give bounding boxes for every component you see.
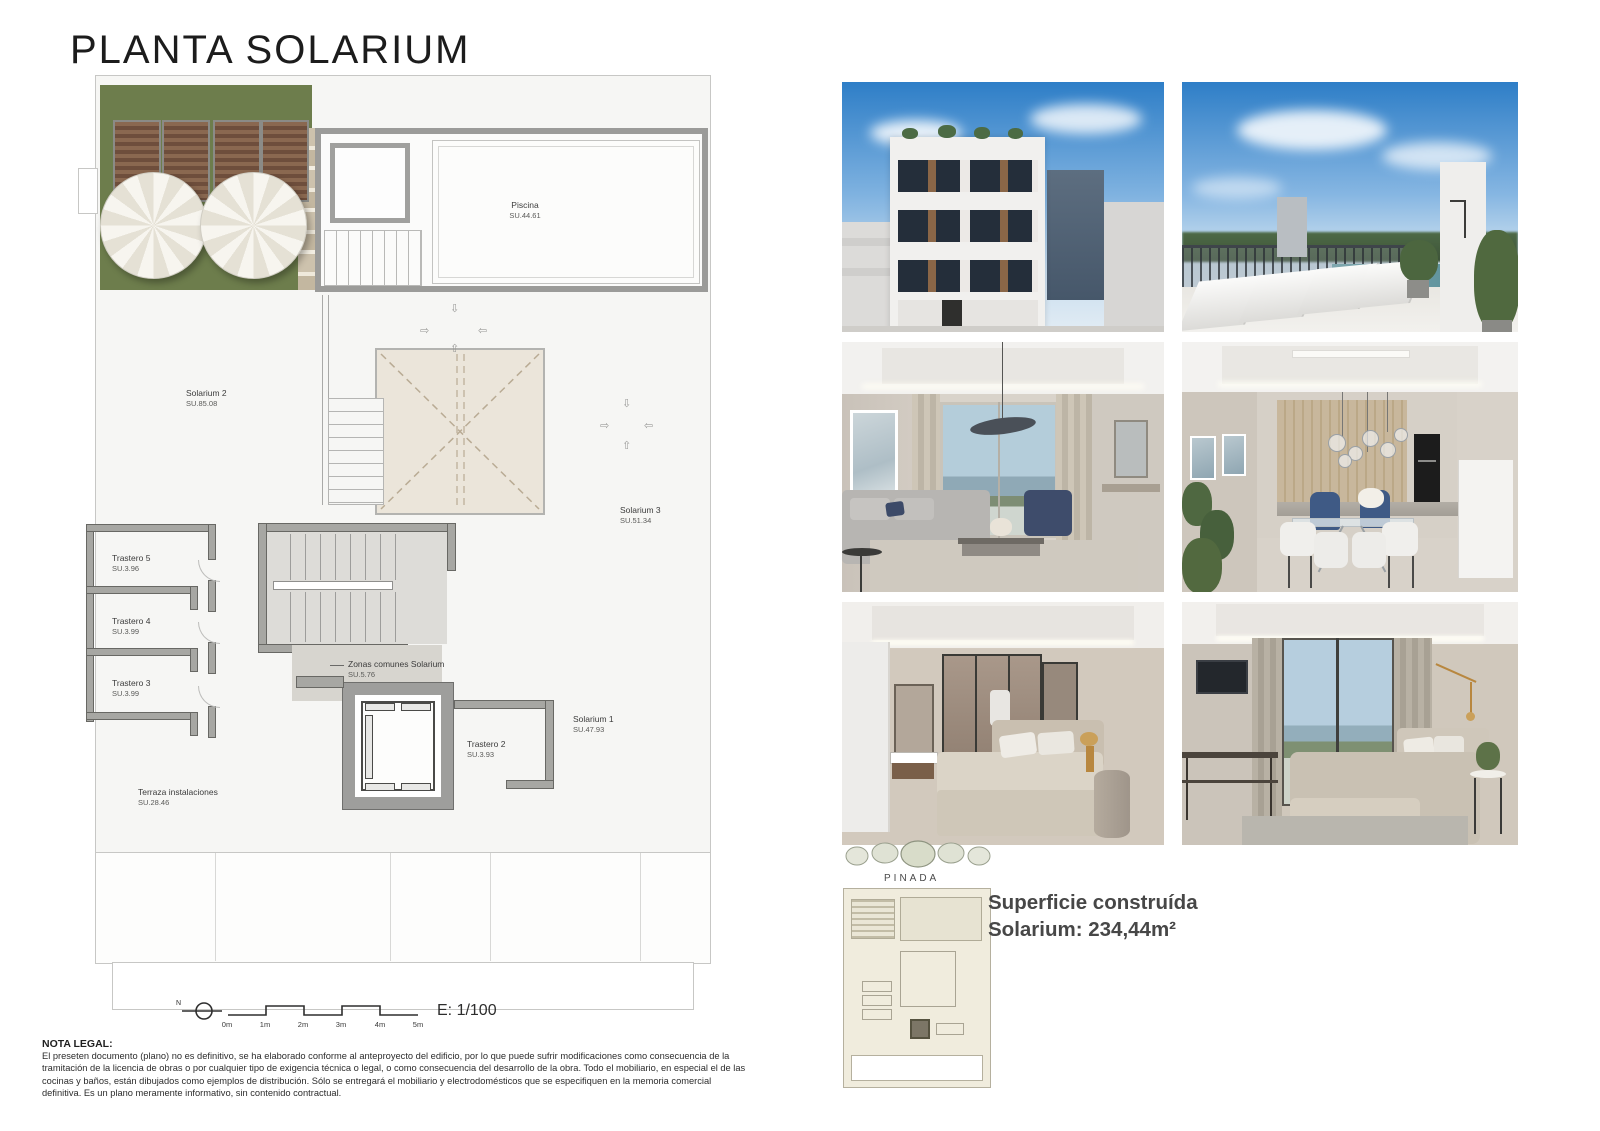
neighbor-building-right bbox=[1104, 202, 1164, 332]
bathroom-mirror bbox=[894, 684, 934, 756]
site-plan-label: PINADA bbox=[884, 873, 939, 884]
side-table-leg bbox=[1474, 778, 1476, 834]
elevator-door-rail bbox=[365, 783, 395, 791]
room-area: SU.28.46 bbox=[138, 798, 218, 807]
slope-arrow-right-icon: ⇨ bbox=[420, 325, 429, 336]
pinada-trees-icon bbox=[843, 840, 993, 870]
roof-plant bbox=[938, 125, 956, 138]
room-name: Trastero 4 bbox=[112, 616, 150, 626]
scale-tick-label: 5m bbox=[406, 1020, 430, 1029]
window-band bbox=[898, 160, 1038, 192]
wall-tv bbox=[1196, 660, 1248, 694]
room-label-solarium-2: Solarium 2 SU.85.08 bbox=[186, 388, 227, 408]
room-name: Zonas comunes Solarium bbox=[348, 659, 444, 669]
wall bbox=[258, 523, 456, 532]
wall bbox=[190, 586, 198, 610]
chair-leg bbox=[1388, 556, 1390, 588]
plant bbox=[1474, 230, 1518, 332]
chandelier-bubble bbox=[1362, 430, 1379, 447]
cove-light bbox=[872, 640, 1134, 645]
scale-tick-label: 0m bbox=[215, 1020, 239, 1029]
wall bbox=[86, 524, 216, 532]
sofa-cushion bbox=[850, 498, 890, 520]
render-photo-living-room bbox=[842, 342, 1164, 592]
legal-note: NOTA LEGAL: El preseten documento (plano… bbox=[42, 1038, 748, 1100]
slope-arrow-left-icon: ⇦ bbox=[478, 325, 487, 336]
room-area: SU.47.93 bbox=[573, 725, 614, 734]
street bbox=[842, 326, 1164, 332]
pool-stairs bbox=[324, 230, 422, 286]
room-area: SU.44.61 bbox=[470, 211, 580, 220]
wall bbox=[296, 676, 344, 688]
roof-plant bbox=[1008, 128, 1023, 139]
flower-bouquet bbox=[990, 518, 1012, 536]
side-table-leg bbox=[860, 554, 862, 592]
chandelier-bubble bbox=[1328, 434, 1346, 452]
built-in-oven bbox=[1414, 434, 1440, 504]
cove-light bbox=[1218, 382, 1482, 387]
wall bbox=[208, 524, 216, 560]
flower-bouquet bbox=[1358, 488, 1384, 508]
wall bbox=[86, 648, 198, 656]
chandelier-bubble bbox=[1338, 454, 1352, 468]
room-name: Trastero 5 bbox=[112, 553, 150, 563]
cove-light bbox=[862, 384, 1144, 389]
north-label: N bbox=[176, 1000, 181, 1007]
legal-heading: NOTA LEGAL: bbox=[42, 1038, 748, 1050]
wall bbox=[190, 712, 198, 736]
room-label-trastero-5: Trastero 5 SU.3.96 bbox=[112, 553, 150, 573]
wall-art bbox=[850, 410, 898, 502]
umbrella-icon bbox=[100, 172, 207, 279]
scale-tick-label: 4m bbox=[368, 1020, 392, 1029]
scale-tick-label: 1m bbox=[253, 1020, 277, 1029]
mini-plan-skylight bbox=[900, 951, 956, 1007]
ceiling-recess bbox=[1216, 604, 1484, 636]
render-photo-rooftop-terrace bbox=[1182, 82, 1518, 332]
room-label-solarium-1: Solarium 1 SU.47.93 bbox=[573, 714, 614, 734]
chandelier-cord bbox=[1342, 392, 1343, 437]
gold-lamp-base bbox=[1086, 746, 1094, 772]
scale-tick-label: 2m bbox=[291, 1020, 315, 1029]
stair-flight-upper bbox=[276, 534, 396, 580]
side-table-leg bbox=[1500, 778, 1502, 834]
wall bbox=[447, 523, 456, 571]
roof-plant bbox=[974, 127, 990, 139]
white-chair bbox=[1314, 532, 1348, 568]
stair-flight-lower bbox=[276, 592, 396, 642]
gold-wall-lamp-stem bbox=[1470, 682, 1472, 714]
room-name: Solarium 3 bbox=[620, 505, 661, 515]
slope-arrow-right-icon: ⇨ bbox=[600, 420, 609, 431]
rug bbox=[1242, 816, 1468, 845]
mini-plan-pool bbox=[900, 897, 982, 941]
ceiling-light-panel bbox=[1292, 350, 1410, 358]
pillow bbox=[1037, 731, 1074, 755]
mini-plan-room bbox=[936, 1023, 964, 1035]
slope-arrow-up-icon: ⇧ bbox=[450, 343, 459, 354]
chair-leg bbox=[1412, 556, 1414, 588]
skylight-dashed-lines bbox=[377, 350, 543, 513]
room-name: Terraza instalaciones bbox=[138, 787, 218, 797]
room-area: SU.3.99 bbox=[112, 627, 150, 636]
room-area: SU.5.76 bbox=[348, 670, 444, 679]
dark-building-slab bbox=[1047, 170, 1104, 300]
room-name: Solarium 2 bbox=[186, 388, 227, 398]
plan-division-line bbox=[390, 853, 391, 961]
plan-division-line bbox=[215, 853, 216, 961]
slope-arrow-down-icon: ⇩ bbox=[622, 398, 631, 409]
slope-arrow-left-icon: ⇦ bbox=[644, 420, 653, 431]
navy-armchair bbox=[1024, 490, 1072, 536]
room-area: SU.3.93 bbox=[467, 750, 505, 759]
cloud bbox=[1030, 104, 1142, 134]
plan-boundary-lower bbox=[95, 852, 711, 964]
stair-handrail bbox=[273, 581, 393, 590]
room-area: SU.3.99 bbox=[112, 689, 150, 698]
room-name: Trastero 2 bbox=[467, 739, 505, 749]
curtain bbox=[1252, 638, 1282, 818]
white-chair bbox=[1382, 522, 1418, 556]
window-band bbox=[898, 260, 1038, 292]
room-label-trastero-2: Trastero 2 SU.3.93 bbox=[467, 739, 505, 759]
slope-arrow-down-icon: ⇩ bbox=[450, 303, 459, 314]
legal-body: El preseten documento (plano) no es defi… bbox=[42, 1050, 748, 1100]
white-chair bbox=[1352, 532, 1386, 568]
gold-lamp-shade bbox=[1080, 732, 1098, 746]
white-cabinet bbox=[1458, 460, 1513, 578]
room-name: Piscina bbox=[511, 200, 538, 210]
plan-notch bbox=[78, 168, 98, 214]
room-label-solarium-3: Solarium 3 SU.51.34 bbox=[620, 505, 661, 525]
desk-leg bbox=[1186, 758, 1188, 820]
site-mini-plan bbox=[843, 888, 991, 1088]
wall bbox=[208, 642, 216, 674]
elevator-door-rail bbox=[365, 703, 395, 711]
room-label-zonas-comunes: Zonas comunes Solarium SU.5.76 bbox=[348, 659, 444, 679]
room-label-trastero-4: Trastero 4 SU.3.99 bbox=[112, 616, 150, 636]
navy-pillow bbox=[885, 501, 905, 517]
ceiling-recess bbox=[872, 606, 1134, 640]
built-area-summary: Superficie construída Solarium: 234,44m² bbox=[988, 890, 1198, 943]
scale-bar bbox=[227, 1002, 420, 1018]
ceiling-recess bbox=[882, 348, 1124, 384]
render-photo-bedroom-window bbox=[1182, 602, 1518, 845]
wall bbox=[86, 586, 198, 594]
mirror bbox=[1114, 420, 1148, 478]
scale-ratio: E: 1/100 bbox=[437, 1002, 497, 1020]
plant bbox=[1400, 240, 1438, 282]
render-photo-bedroom-dressing bbox=[842, 602, 1164, 845]
window-band bbox=[898, 210, 1038, 242]
room-name: Solarium 1 bbox=[573, 714, 614, 724]
floor-plan: Piscina SU.44.61 ⇩ ⇨ ⇦ ⇧ ⇩ ⇨ ⇦ ⇧ Solariu… bbox=[0, 0, 780, 1131]
room-area: SU.3.96 bbox=[112, 564, 150, 573]
bed-blanket bbox=[937, 790, 1103, 836]
summary-line-2: Solarium: 234,44m² bbox=[988, 917, 1198, 944]
render-photo-building-exterior bbox=[842, 82, 1164, 332]
chandelier-bubble bbox=[1394, 428, 1408, 442]
chandelier-bubble bbox=[1380, 442, 1396, 458]
mini-plan-room bbox=[862, 1009, 892, 1020]
wall-art bbox=[1190, 436, 1216, 480]
elevator-door-rail bbox=[401, 783, 431, 791]
gold-wall-lamp-bulb bbox=[1466, 712, 1475, 721]
open-stair bbox=[328, 398, 384, 505]
planter-pot bbox=[1407, 280, 1429, 298]
chair-leg bbox=[1288, 556, 1290, 588]
coffee-table bbox=[962, 544, 1040, 556]
elevator-shaft bbox=[342, 682, 454, 810]
wall bbox=[258, 523, 267, 653]
room-label-terraza-instalaciones: Terraza instalaciones SU.28.46 bbox=[138, 787, 218, 807]
cloud bbox=[1192, 177, 1282, 199]
side-table-top bbox=[1470, 770, 1506, 778]
oven-handle bbox=[1418, 460, 1436, 462]
vanity-cabinet bbox=[892, 763, 934, 779]
wall bbox=[86, 712, 198, 720]
skylight bbox=[375, 348, 545, 515]
console-table bbox=[1102, 484, 1160, 492]
room-name: Trastero 3 bbox=[112, 678, 150, 688]
chair-leg bbox=[1310, 556, 1312, 588]
wall bbox=[545, 700, 554, 788]
room-label-piscina: Piscina SU.44.61 bbox=[470, 200, 580, 220]
wall bbox=[208, 706, 216, 738]
elevator-door-rail bbox=[401, 703, 431, 711]
door-panel bbox=[842, 642, 890, 832]
wall bbox=[190, 648, 198, 672]
roof-plant bbox=[902, 128, 918, 139]
mini-plan-green-area bbox=[851, 899, 895, 939]
desk-leg bbox=[1270, 758, 1272, 820]
white-chair bbox=[1280, 522, 1316, 556]
plinth-side-table bbox=[1094, 770, 1130, 838]
chimney-block bbox=[1277, 197, 1307, 257]
pool-room bbox=[330, 143, 410, 223]
chandelier-cord bbox=[1387, 392, 1388, 432]
wall-art bbox=[1222, 434, 1246, 476]
summary-line-1: Superficie construída bbox=[988, 890, 1198, 917]
planter-pot bbox=[1482, 320, 1512, 332]
mini-plan-room bbox=[862, 981, 892, 992]
mini-plan-elevator bbox=[910, 1019, 930, 1039]
wall bbox=[454, 700, 554, 709]
render-photo-dining-kitchen bbox=[1182, 342, 1518, 592]
wall bbox=[208, 580, 216, 612]
side-table bbox=[842, 548, 882, 556]
pendant-cord bbox=[1002, 342, 1003, 422]
scale-tick-label: 3m bbox=[329, 1020, 353, 1029]
north-compass-icon bbox=[182, 1000, 226, 1022]
desk-top bbox=[1182, 752, 1278, 758]
flower-vase-plant bbox=[1476, 742, 1500, 770]
room-label-trastero-3: Trastero 3 SU.3.99 bbox=[112, 678, 150, 698]
desk-shelf bbox=[1182, 780, 1278, 783]
slope-arrow-up-icon: ⇧ bbox=[622, 440, 631, 451]
plan-division-line bbox=[640, 853, 641, 961]
plant bbox=[1182, 538, 1222, 592]
umbrella-icon bbox=[200, 172, 307, 279]
mini-plan-room bbox=[862, 995, 892, 1006]
room-area: SU.51.34 bbox=[620, 516, 661, 525]
plan-division-line bbox=[490, 853, 491, 961]
wall bbox=[86, 524, 94, 722]
cloud bbox=[1237, 110, 1387, 150]
label-leader-line bbox=[330, 665, 344, 666]
elevator-guide-rail bbox=[365, 715, 373, 779]
shower-pipe bbox=[1464, 200, 1466, 238]
room-area: SU.85.08 bbox=[186, 399, 227, 408]
wall bbox=[506, 780, 554, 789]
mini-plan-lower-band bbox=[851, 1055, 983, 1081]
